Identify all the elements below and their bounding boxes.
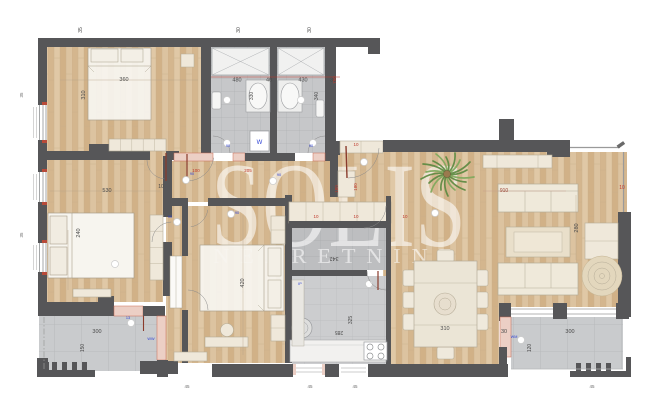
svg-text:205: 205: [244, 168, 252, 173]
svg-text:310: 310: [81, 90, 87, 99]
svg-text:10: 10: [619, 185, 625, 191]
svg-text:45: 45: [352, 384, 358, 389]
svg-text:300: 300: [565, 329, 574, 335]
svg-text:90: 90: [226, 144, 230, 148]
svg-text:325: 325: [348, 316, 354, 325]
svg-text:10: 10: [353, 142, 359, 147]
svg-text:10: 10: [158, 184, 164, 190]
svg-text:90: 90: [168, 215, 172, 219]
svg-text:35: 35: [19, 232, 24, 238]
svg-text:240: 240: [76, 228, 82, 237]
svg-text:30: 30: [501, 329, 507, 335]
svg-text:342: 342: [329, 255, 338, 261]
svg-text:530: 530: [102, 188, 111, 194]
svg-text:WM: WM: [511, 335, 518, 339]
svg-text:300: 300: [92, 329, 101, 335]
svg-text:30: 30: [236, 27, 242, 33]
svg-text:90: 90: [309, 144, 313, 148]
svg-text:285: 285: [335, 329, 344, 335]
svg-text:180: 180: [334, 185, 339, 193]
svg-text:WW: WW: [147, 337, 155, 341]
svg-text:750: 750: [332, 76, 337, 84]
svg-text:340: 340: [314, 92, 320, 101]
svg-text:30: 30: [307, 27, 313, 33]
svg-text:430: 430: [298, 78, 307, 84]
svg-text:45: 45: [589, 384, 595, 389]
svg-text:40: 40: [266, 78, 272, 84]
svg-text:10: 10: [402, 214, 408, 219]
svg-text:10: 10: [353, 214, 359, 219]
svg-text:90: 90: [190, 172, 194, 176]
svg-text:330: 330: [249, 92, 255, 101]
svg-text:310: 310: [440, 326, 449, 332]
svg-text:150: 150: [80, 344, 86, 353]
svg-text:35: 35: [78, 27, 84, 33]
svg-text:280: 280: [574, 223, 580, 232]
svg-text:90: 90: [235, 211, 239, 215]
svg-text:45: 45: [307, 384, 313, 389]
svg-text:35: 35: [19, 92, 24, 98]
svg-text:IP: IP: [298, 282, 302, 286]
svg-text:120: 120: [527, 344, 533, 353]
svg-text:13: 13: [126, 316, 130, 320]
svg-text:45: 45: [184, 384, 190, 389]
svg-text:910: 910: [500, 188, 509, 194]
svg-text:480: 480: [232, 78, 241, 84]
svg-text:180: 180: [353, 183, 358, 191]
svg-text:420: 420: [240, 278, 246, 287]
svg-text:90: 90: [277, 173, 281, 177]
svg-text:10: 10: [313, 214, 319, 219]
svg-text:W: W: [257, 140, 263, 146]
svg-text:360: 360: [119, 77, 128, 83]
